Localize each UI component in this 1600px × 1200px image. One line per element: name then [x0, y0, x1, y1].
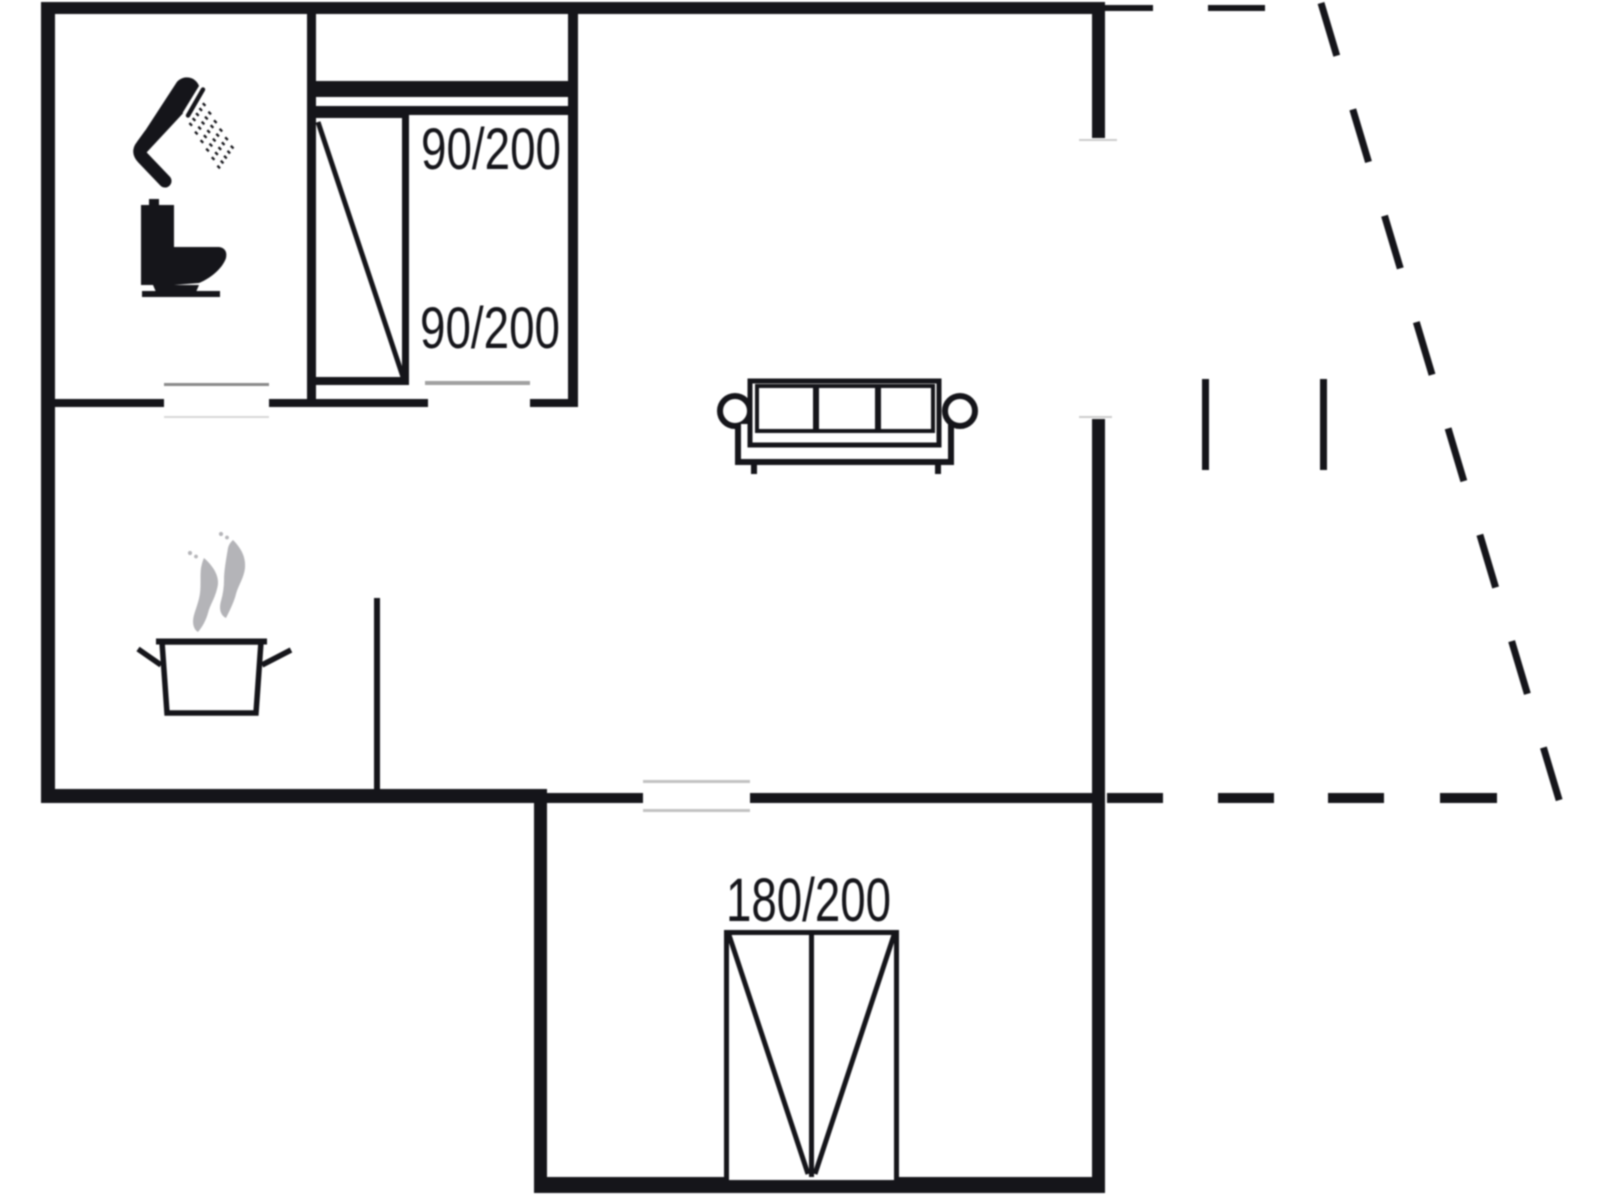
svg-text:180/200: 180/200 — [726, 866, 891, 934]
svg-text:90/200: 90/200 — [421, 117, 561, 182]
svg-text:90/200: 90/200 — [420, 296, 560, 361]
